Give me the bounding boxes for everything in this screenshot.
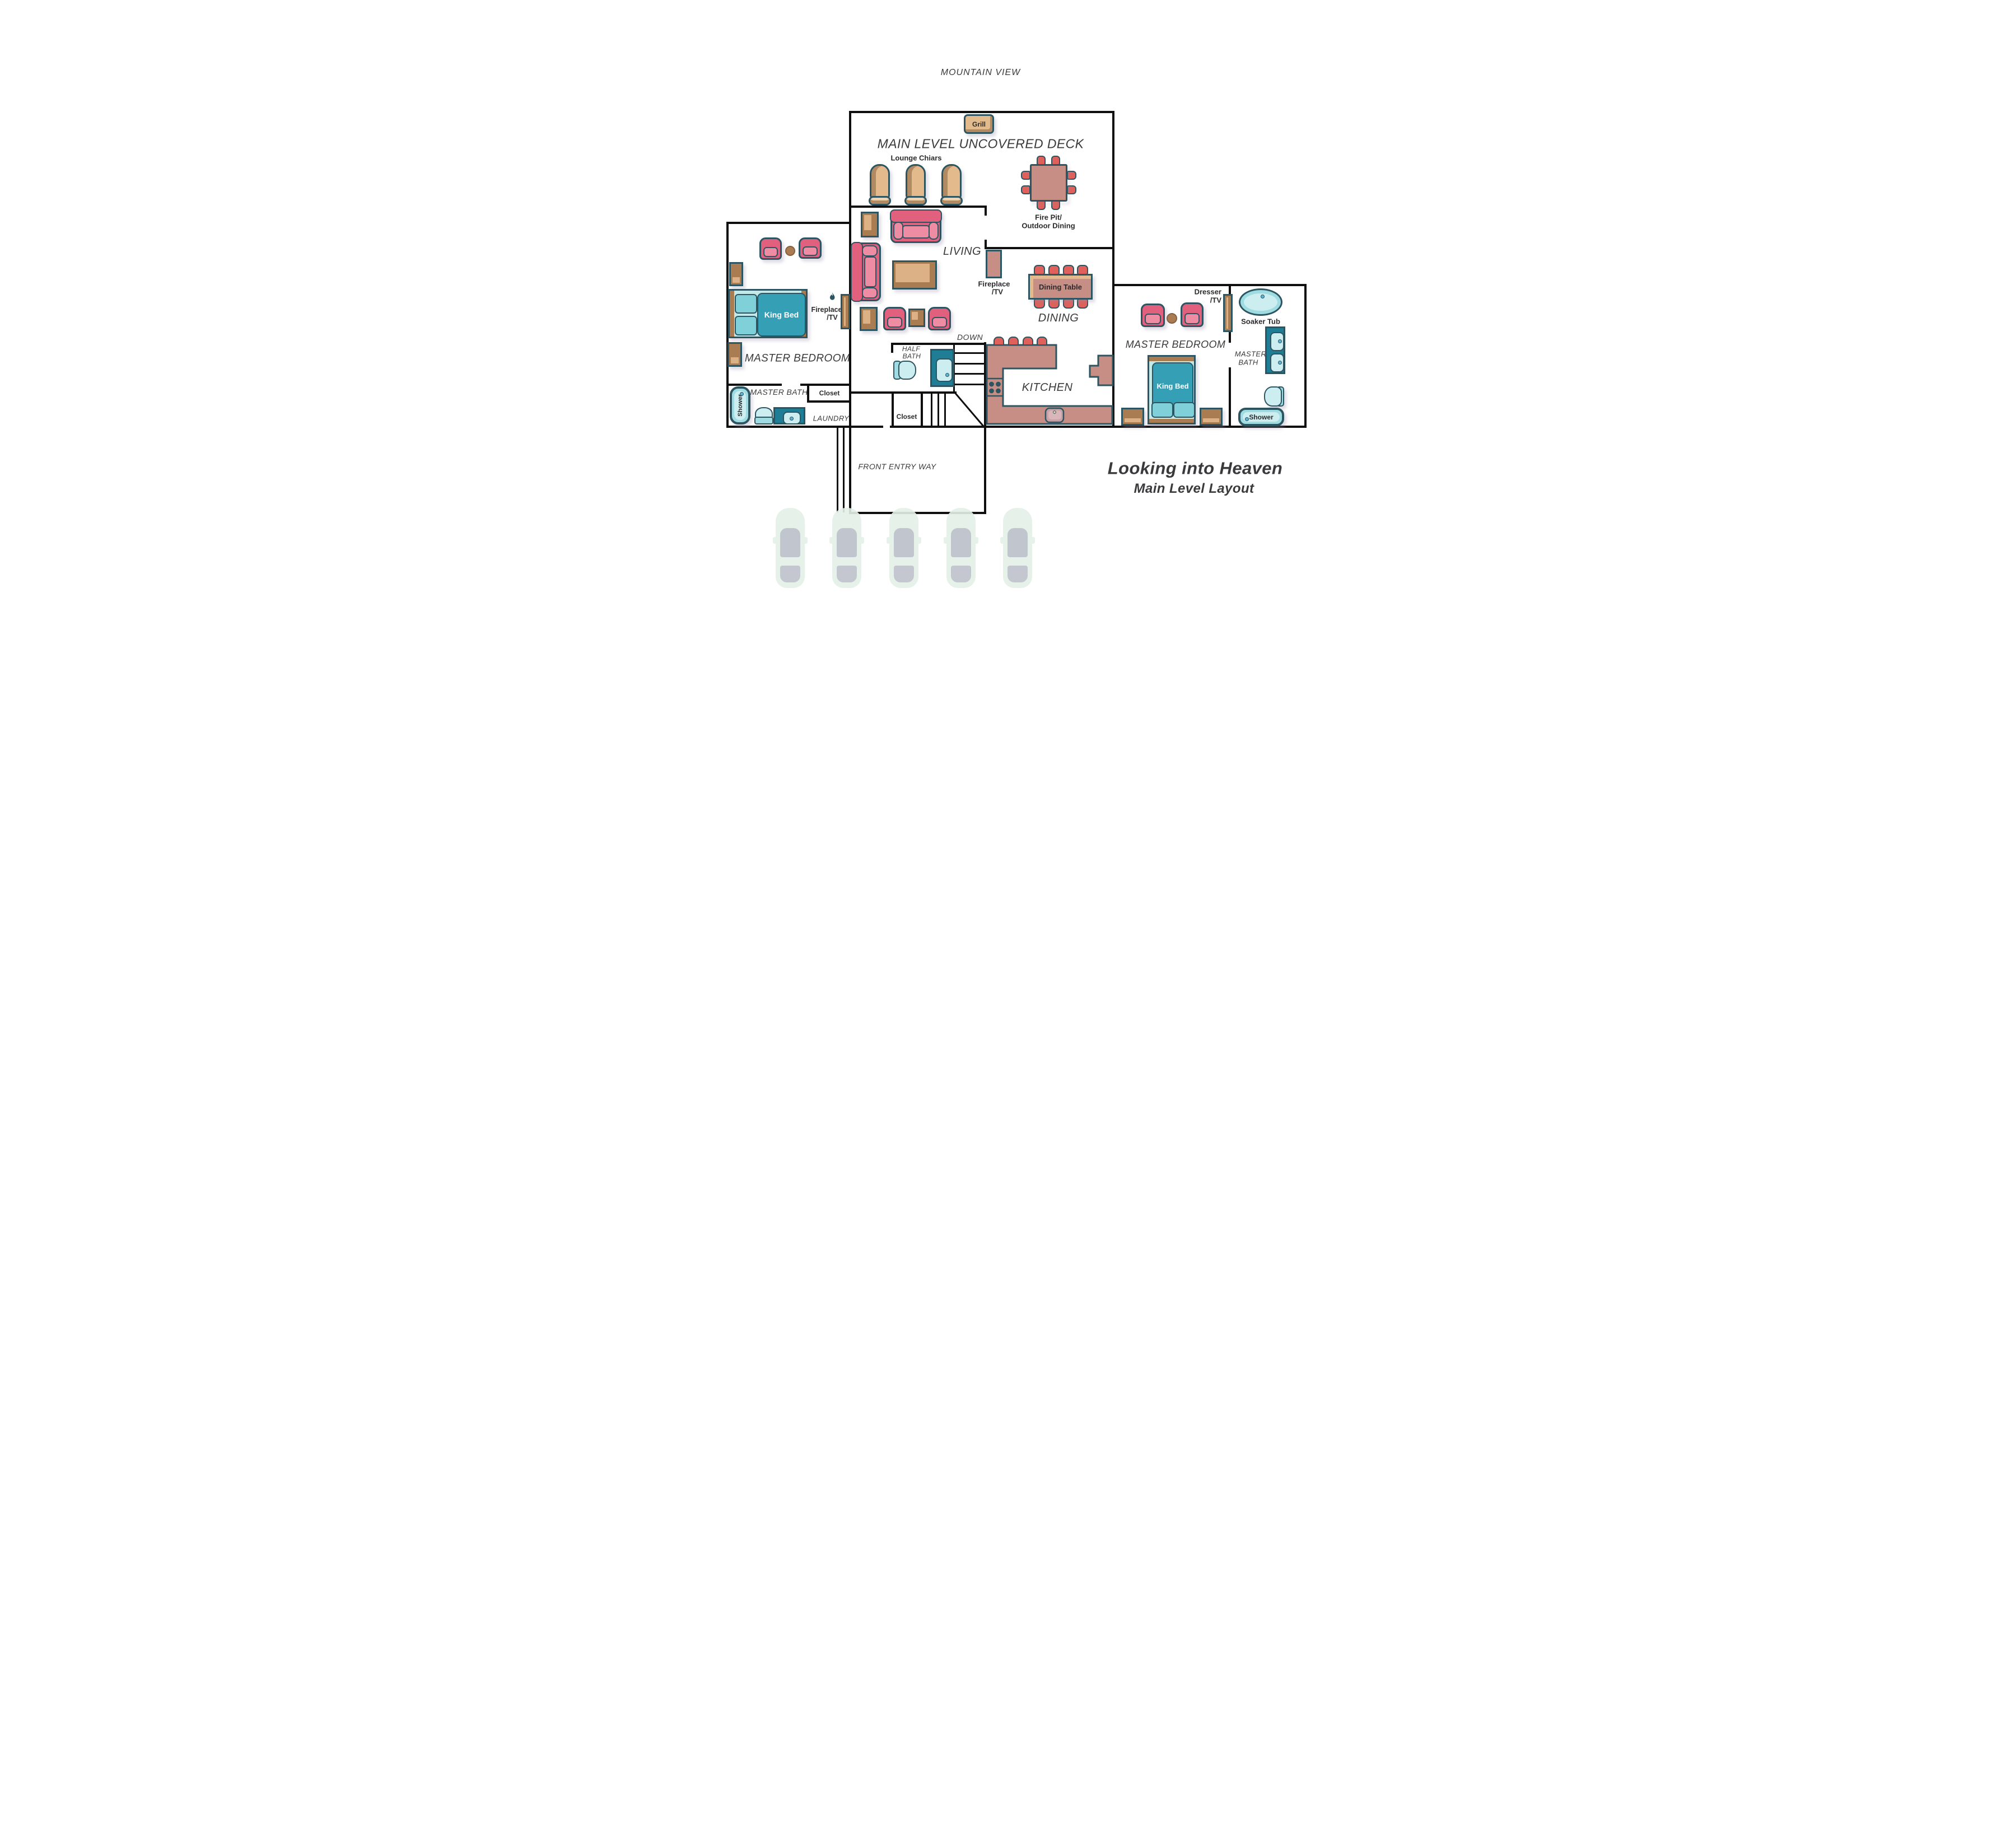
left-king-bed-mattress: King Bed [757, 293, 806, 337]
car [889, 508, 918, 588]
half-bath-toilet [893, 361, 915, 377]
fire-pit-chair [1037, 200, 1046, 210]
right-bath-toilet [1264, 386, 1284, 404]
lounge-chair [906, 164, 926, 199]
dining-chair [1077, 298, 1088, 309]
left-bedroom-round-table [785, 246, 795, 256]
right-bedroom-nightstand [1121, 408, 1144, 426]
fire-pit-chair [1067, 171, 1076, 180]
left-bedroom-nightstand [729, 262, 743, 286]
right-bedroom-armchair [1181, 302, 1204, 327]
living-mini-table [908, 309, 925, 327]
car [946, 508, 976, 588]
fire-pit-chair [1021, 171, 1030, 180]
car [776, 508, 805, 588]
right-shower-label: Shower [1249, 413, 1273, 421]
sink-faucet [1053, 411, 1056, 414]
fire-pit-chair [1021, 185, 1030, 194]
right-shower: Shower [1238, 408, 1284, 426]
dining-chair [1034, 298, 1045, 309]
half-bath-vanity [930, 349, 954, 387]
lounge-chair [941, 164, 962, 199]
living-armchair [928, 307, 951, 330]
fire-pit-table-fill [1032, 166, 1066, 200]
lounge-chair-foot [904, 196, 927, 206]
car [832, 508, 861, 588]
right-king-bed: King Bed [1148, 355, 1196, 424]
lounge-chair [870, 164, 890, 199]
left-bath-toilet [754, 407, 771, 424]
right-bedroom-armchair [1141, 304, 1165, 327]
right-bedroom-dresser [1223, 294, 1233, 332]
stove-burner [996, 382, 1001, 387]
living-sofa-top [890, 211, 941, 243]
kitchen-stool [993, 337, 1004, 346]
fire-pit-chair [1067, 185, 1076, 194]
car [1003, 508, 1032, 588]
kitchen-stool [1037, 337, 1047, 346]
left-bedroom-nightstand [727, 342, 742, 367]
kitchen-stool [1023, 337, 1033, 346]
dining-table: Dining Table [1028, 274, 1093, 300]
left-bedroom-armchair [799, 237, 822, 259]
living-side-table [861, 212, 879, 237]
living-sofa-left [852, 242, 881, 301]
left-bath-vanity [773, 407, 805, 424]
left-king-bed: King Bed [728, 289, 808, 338]
right-king-bed-label: King Bed [1156, 382, 1188, 390]
grill-label: Grill [972, 120, 986, 128]
lounge-chair-foot [940, 196, 963, 206]
left-bedroom-flame-icon [830, 292, 835, 300]
right-bath-vanity [1265, 326, 1285, 374]
left-shower-label: Shower [737, 394, 744, 417]
kitchen-stool [1008, 337, 1019, 346]
living-end-table [860, 307, 878, 331]
left-king-bed-label: King Bed [764, 310, 799, 319]
living-coffee-table [892, 260, 937, 290]
dining-chair [1048, 298, 1060, 309]
dining-table-label: Dining Table [1039, 283, 1082, 291]
stove-burner [996, 389, 1001, 394]
right-bedroom-nightstand [1200, 408, 1223, 426]
grill: Grill [964, 114, 994, 134]
dining-chair [1063, 298, 1074, 309]
floor-plan: MOUNTAIN VIEW MAIN LEVEL UNCOVERED DECK … [671, 0, 1344, 616]
stove-burner [989, 389, 994, 394]
living-fireplace-tv [986, 250, 1002, 278]
kitchen-counter-l [1090, 356, 1113, 385]
lounge-chair-foot [869, 196, 891, 206]
fire-pit-chair [1051, 200, 1060, 210]
soaker-tub [1239, 288, 1282, 316]
left-shower: Shower [730, 386, 750, 424]
right-bedroom-round-table [1167, 313, 1177, 324]
left-bedroom-tv-console [841, 294, 850, 329]
living-armchair [883, 307, 906, 330]
left-bedroom-armchair [759, 237, 782, 260]
stove-burner [989, 382, 994, 387]
